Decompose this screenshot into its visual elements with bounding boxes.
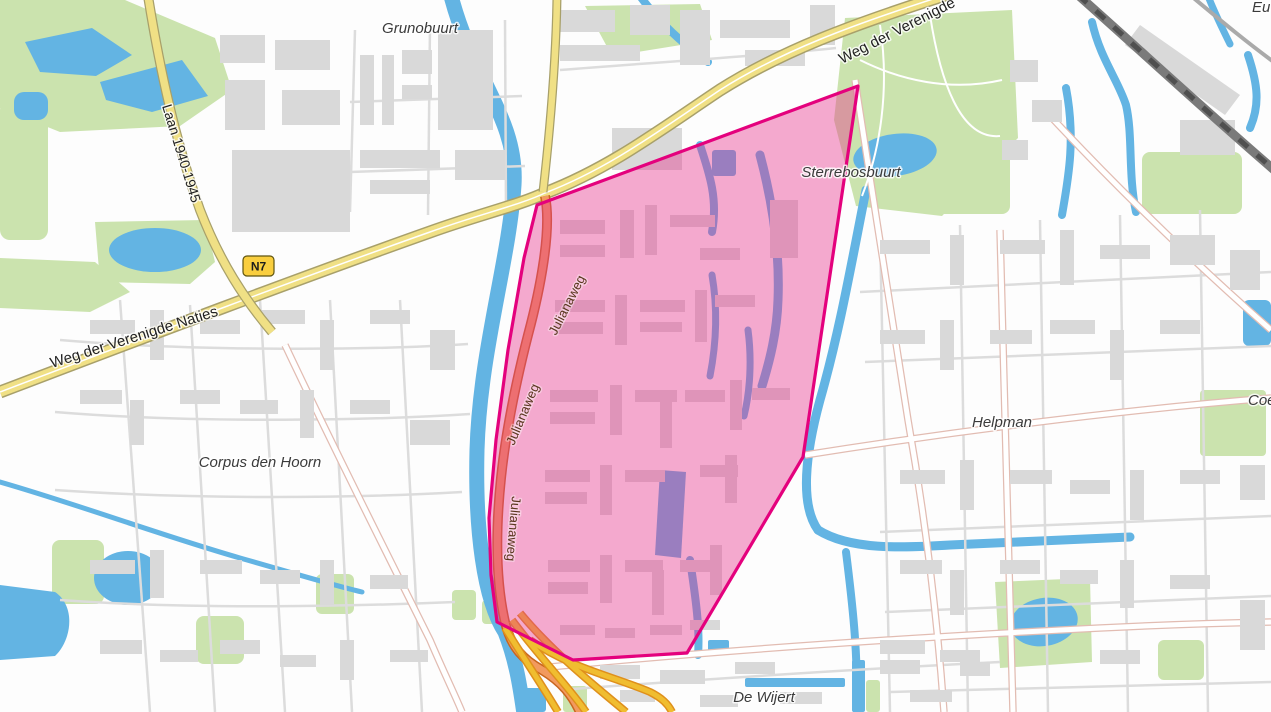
place-label-sterrebosbuurt: Sterrebosbuurt [801, 164, 901, 181]
map-canvas: Weg der Verenigde Naties Weg der Verenig… [0, 0, 1271, 712]
place-label-grunobuurt: Grunobuurt [382, 20, 459, 37]
route-badge-n7: N7 [243, 256, 274, 276]
place-label-helpman: Helpman [972, 414, 1032, 431]
place-label-de-wijert: De Wijert [733, 689, 795, 706]
place-label-corpus-den-hoorn: Corpus den Hoorn [199, 454, 322, 471]
place-label-coendersborg-partial: Coen [1248, 392, 1271, 409]
map-viewport[interactable]: Weg der Verenigde Naties Weg der Verenig… [0, 0, 1271, 712]
n7-badge-label: N7 [251, 260, 267, 274]
place-label-europapark-partial: Eu [1252, 0, 1271, 16]
